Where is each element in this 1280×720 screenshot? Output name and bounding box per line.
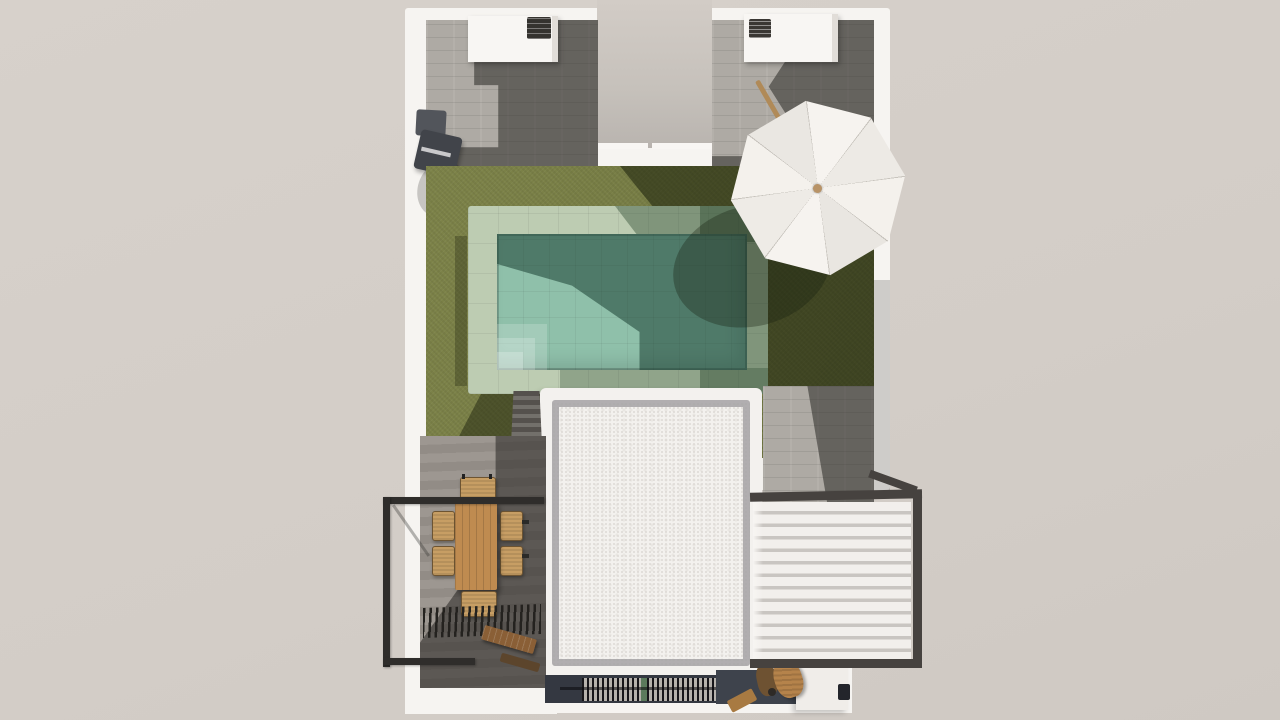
railing-top — [383, 497, 544, 504]
dark-item — [838, 684, 850, 700]
lawn-shadow-pool-edge — [455, 236, 467, 386]
chair-armrest — [489, 474, 492, 479]
pool-step-3 — [497, 352, 523, 370]
scene — [0, 0, 1280, 720]
dining-chair-left-1 — [432, 511, 455, 541]
roof-gravel-border — [552, 400, 750, 666]
entry-lightwell — [597, 0, 712, 148]
pergola-frame-right — [913, 491, 922, 668]
dining-table — [455, 502, 497, 590]
railing-bottom — [383, 658, 475, 665]
chair-armrest — [522, 520, 529, 524]
umbrella-hub — [813, 184, 822, 193]
pergola-louvers — [753, 502, 911, 660]
pergola-frame-bottom — [750, 659, 922, 668]
bbq-grill-icon — [527, 17, 551, 39]
railing-left — [383, 497, 390, 667]
chair-knob — [768, 688, 776, 696]
dining-chair-right-2 — [500, 546, 523, 576]
bbq-grill-icon — [749, 19, 771, 38]
dining-chair-right-1 — [500, 511, 523, 541]
chair-armrest — [462, 474, 465, 479]
dining-chair-left-2 — [432, 546, 455, 576]
grate-rail — [560, 687, 716, 690]
notch-sill-right — [652, 143, 714, 149]
pergola-louver-tips — [753, 502, 763, 660]
chair-armrest — [522, 554, 529, 558]
right-wall-shading — [874, 280, 890, 490]
